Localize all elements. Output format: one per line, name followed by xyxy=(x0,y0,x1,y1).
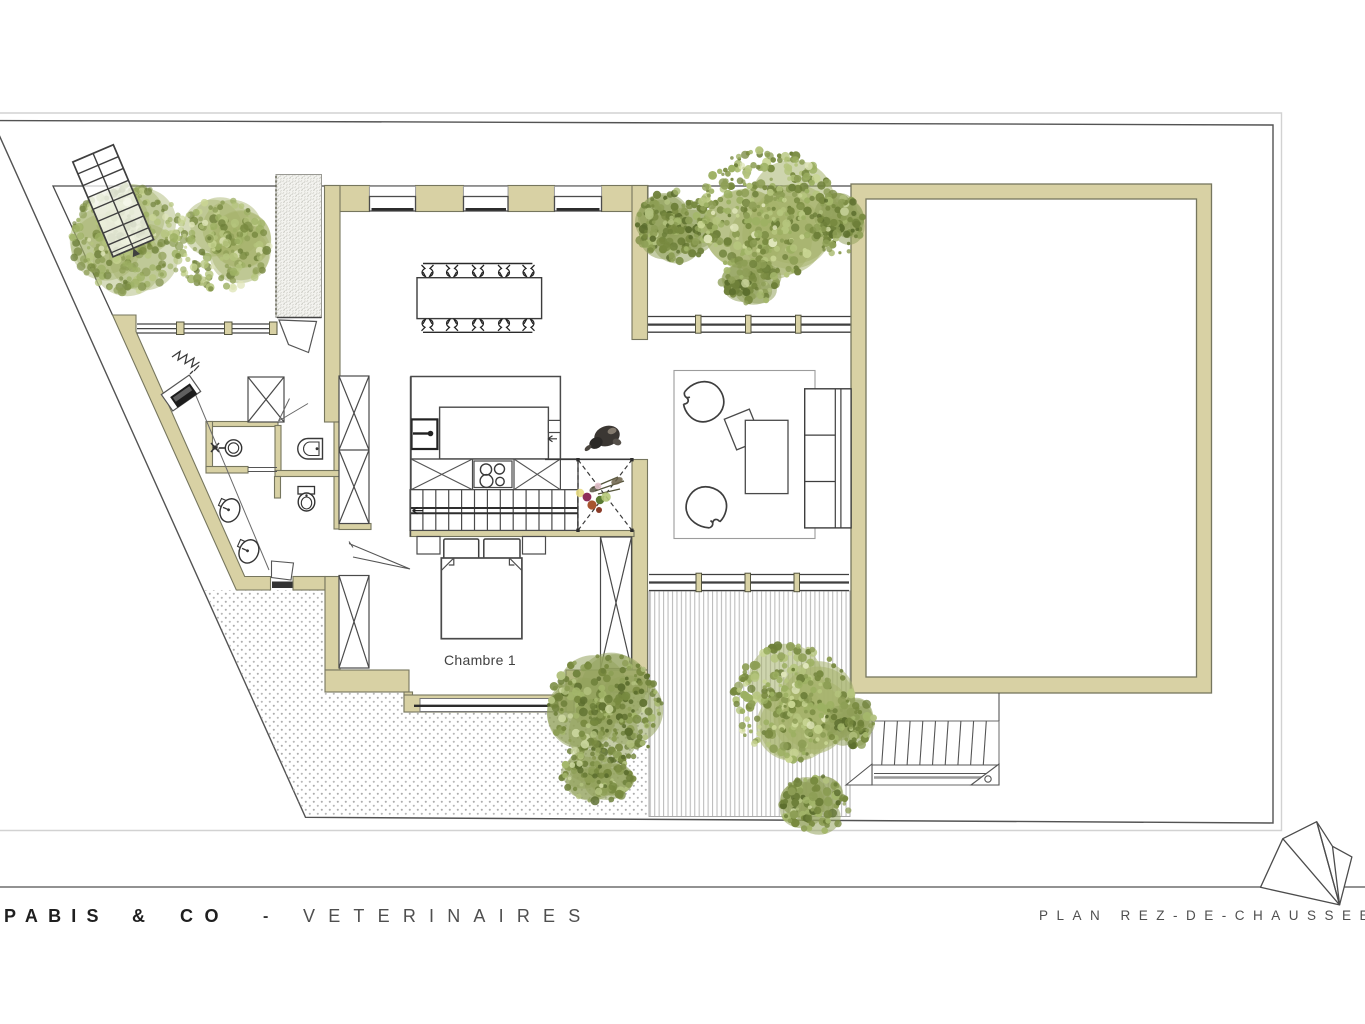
svg-text:&: & xyxy=(132,906,145,926)
svg-text:PABIS: PABIS xyxy=(4,906,109,926)
svg-text:VETERINAIRES: VETERINAIRES xyxy=(303,906,593,926)
svg-text:Chambre 1: Chambre 1 xyxy=(444,652,516,668)
svg-text:CO: CO xyxy=(180,906,230,926)
svg-text:PLAN REZ-DE-CHAUSSEE: PLAN REZ-DE-CHAUSSEE xyxy=(1039,908,1365,923)
svg-text:-: - xyxy=(263,908,268,925)
